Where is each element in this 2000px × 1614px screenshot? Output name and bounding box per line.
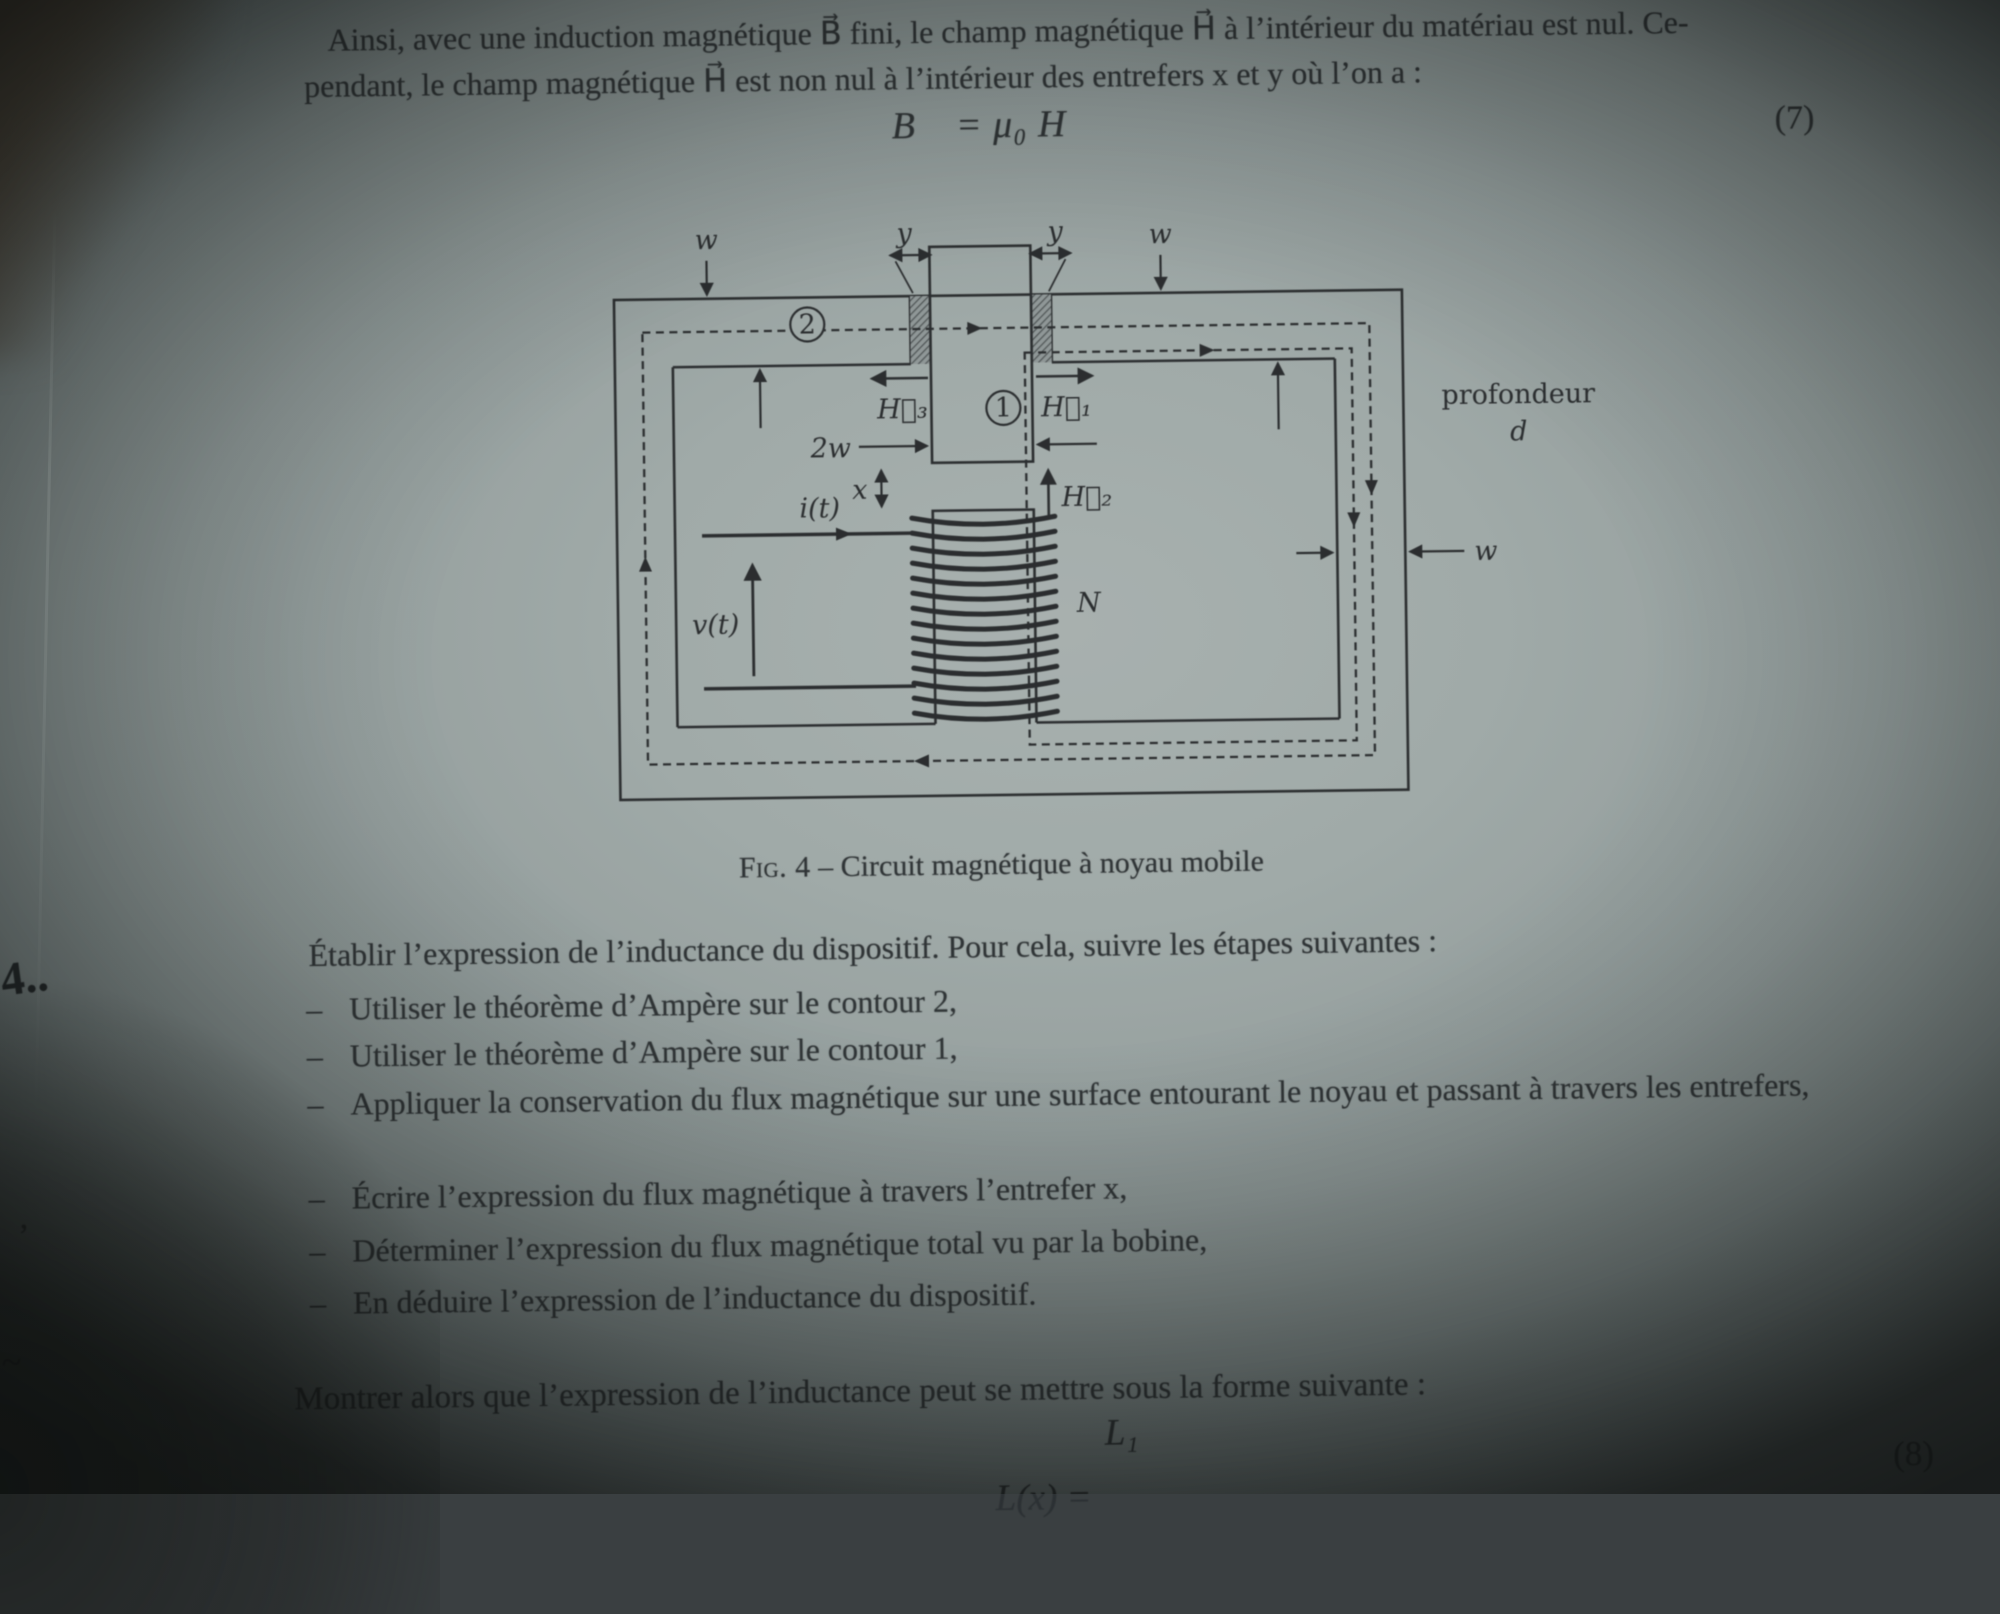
leg-w-label: w bbox=[1474, 535, 1498, 566]
y-left-arrow bbox=[890, 255, 930, 256]
coil bbox=[702, 516, 1058, 723]
current-direction-arrow bbox=[836, 527, 852, 540]
turns-label: N bbox=[1076, 588, 1102, 619]
equation-7-number: (7) bbox=[1774, 99, 1814, 138]
current-label: i(t) bbox=[799, 493, 840, 525]
y-left-leader bbox=[895, 261, 912, 293]
intro-paragraph-line2: pendant, le champ magnétique H⃗ est non … bbox=[304, 52, 1422, 105]
H2-arrow bbox=[1048, 470, 1049, 516]
magnetic-circuit-svg: i(t) v(t) N 2 1 H⃗₃ bbox=[547, 156, 1676, 871]
y-right-label: y bbox=[1046, 216, 1063, 247]
figure-caption-label: Fig. 4 bbox=[739, 850, 811, 884]
equation-7: B⃗ = μ₀ H⃗ bbox=[891, 102, 1096, 149]
intro-paragraph-line1: Ainsi, avec une induction magnétique B⃗ … bbox=[327, 3, 1689, 59]
y-right-leader bbox=[1048, 259, 1065, 291]
coil-wire-bottom bbox=[704, 686, 916, 689]
y-left-label: y bbox=[895, 218, 912, 249]
contour-1-number: 1 bbox=[995, 393, 1013, 424]
depth-label: profondeur bbox=[1441, 378, 1595, 411]
task-intro: Établir l’expression de l’inductance du … bbox=[308, 922, 1437, 974]
voltage-arrow bbox=[752, 565, 753, 676]
2w-arrow-right bbox=[1038, 444, 1097, 445]
H2-label: H⃗₂ bbox=[1060, 482, 1112, 514]
w-left-label: w bbox=[694, 225, 718, 256]
equation-8-lhs: L(x) = bbox=[995, 1476, 1091, 1520]
mobile-core-plunger bbox=[929, 246, 1033, 463]
H3-label: H⃗₃ bbox=[876, 394, 928, 426]
H1-arrow bbox=[1036, 376, 1092, 377]
H1-label: H⃗₁ bbox=[1040, 392, 1092, 424]
H3-arrow bbox=[872, 378, 928, 379]
w-right-up-arrow bbox=[1278, 363, 1279, 429]
bottom-left-shadow bbox=[0, 934, 440, 1614]
equation-8-numerator: L₁ bbox=[1105, 1411, 1139, 1454]
figure-caption-text: Circuit magnétique à noyau mobile bbox=[840, 845, 1264, 884]
figure-caption-dash: – bbox=[818, 850, 833, 883]
depth-symbol: d bbox=[1510, 416, 1528, 447]
equation-8-number: (8) bbox=[1893, 1434, 1934, 1475]
w-left-up-arrow bbox=[760, 370, 761, 428]
coil-wire-top bbox=[702, 533, 912, 536]
2w-label: 2w bbox=[809, 433, 851, 465]
voltage-label: v(t) bbox=[692, 609, 740, 641]
contour-2-number: 2 bbox=[798, 309, 816, 340]
core-outline bbox=[614, 290, 1408, 800]
photographed-document-page: { "paragraph": { "line1": "Ainsi, avec u… bbox=[0, 0, 2000, 1494]
y-right-arrow bbox=[1030, 253, 1070, 254]
x-label: x bbox=[852, 475, 868, 506]
closing-sentence: Montrer alors que l’expression de l’indu… bbox=[294, 1366, 1426, 1418]
w-right-label: w bbox=[1148, 219, 1172, 250]
2w-arrow-left bbox=[859, 446, 927, 447]
figure-4-diagram: i(t) v(t) N 2 1 H⃗₃ bbox=[547, 156, 1676, 871]
leg-w-arrow-out bbox=[1410, 551, 1464, 552]
